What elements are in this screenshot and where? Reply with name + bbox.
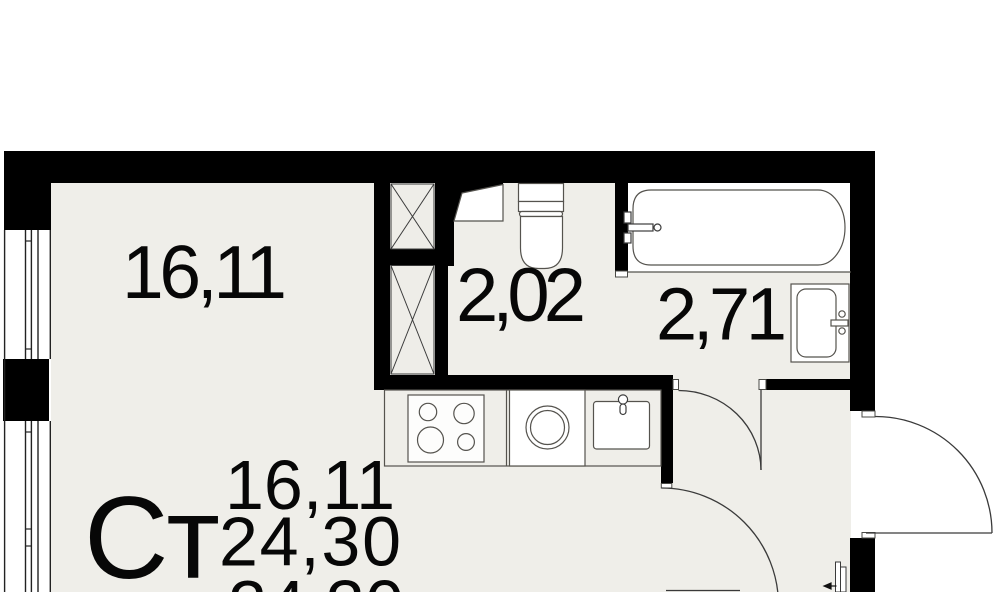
svg-text:2,02: 2,02 xyxy=(456,253,586,338)
svg-text:Ст: Ст xyxy=(84,472,220,592)
svg-text:2,71: 2,71 xyxy=(656,273,787,356)
svg-text:24,30: 24,30 xyxy=(228,566,404,592)
svg-text:16,11: 16,11 xyxy=(122,230,287,314)
